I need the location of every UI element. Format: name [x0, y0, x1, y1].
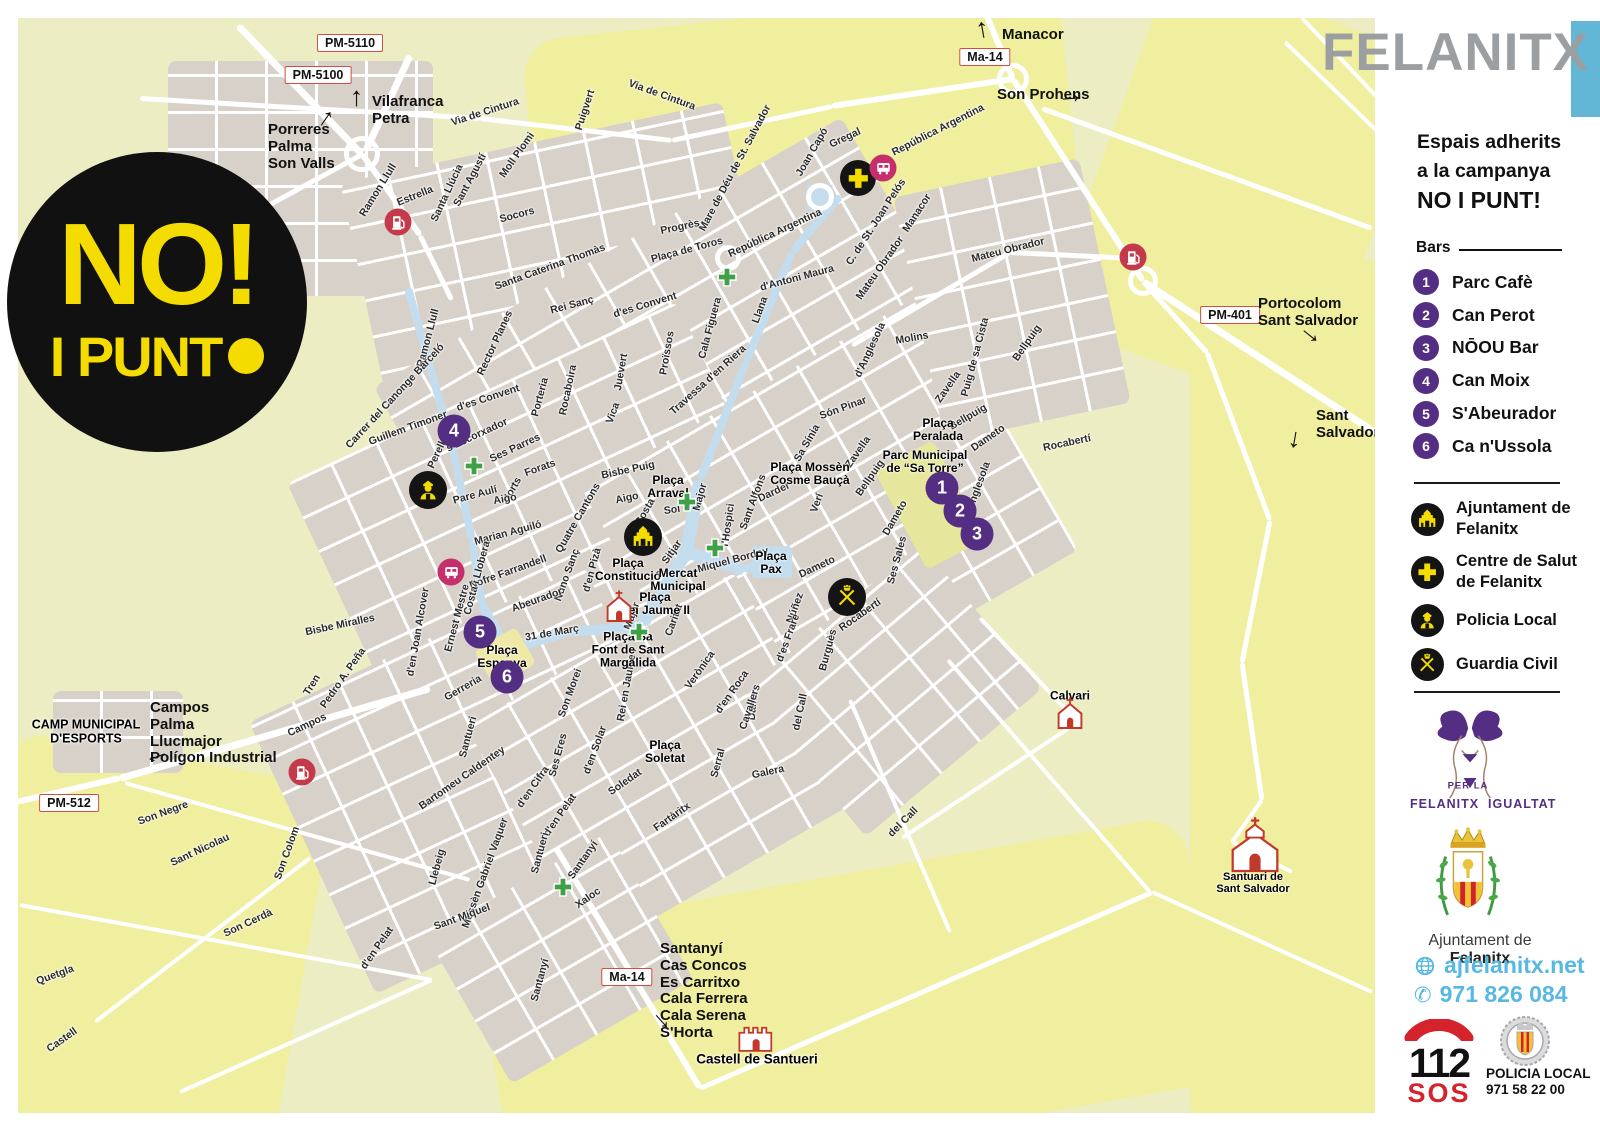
direction-arrow-icon: → — [339, 85, 366, 112]
map-bar-marker-3: 3 — [961, 518, 994, 551]
road-number-badge: Ma-14 — [959, 48, 1010, 66]
police-icon — [1411, 604, 1444, 637]
ajuntament-coat-of-arms — [1434, 824, 1502, 928]
bar-number-badge: 3 — [1413, 335, 1439, 361]
bar-name-label: S'Abeurador — [1452, 403, 1556, 424]
logo-line-2: I PUNT — [50, 324, 265, 389]
cross-icon — [629, 622, 650, 643]
direction-arrow-icon: → — [1056, 80, 1085, 109]
gas-icon — [289, 759, 316, 786]
map-bar-marker-5: 5 — [464, 616, 497, 649]
sos-label: SOS — [1404, 1080, 1474, 1107]
bars-legend-list: 1Parc Cafè2Can Perot3NŌOU Bar4Can Moix5S… — [1413, 266, 1578, 463]
map-bar-marker-6: 6 — [491, 661, 524, 694]
bar-name-label: Can Moix — [1452, 370, 1530, 391]
panel-divider — [1414, 691, 1560, 693]
road-number-badge: Ma-14 — [601, 968, 652, 986]
legend-item: Policia Local — [1411, 604, 1586, 637]
legend-item-label: Policia Local — [1456, 610, 1557, 631]
campaign-line-1: Espais adherits — [1417, 128, 1561, 157]
bar-number-badge: 4 — [1413, 368, 1439, 394]
cross-icon — [677, 492, 698, 513]
police-icon — [409, 471, 447, 509]
roundabout — [806, 183, 834, 211]
phone-icon: ✆ — [1414, 983, 1432, 1007]
bars-section-header: Bars — [1416, 239, 1562, 257]
bars-header-label: Bars — [1416, 239, 1450, 257]
road-number-badge: PM-512 — [39, 794, 99, 812]
road-number-badge: PM-401 — [1200, 306, 1260, 324]
phone-number: 971 826 084 — [1440, 981, 1568, 1008]
page-title: FELANITX — [1322, 22, 1562, 83]
felanitx-campaign-map-poster: Via de CinturaVia de CinturaPuigvertMoll… — [0, 0, 1600, 1131]
roundabout — [1128, 266, 1158, 296]
church-icon — [1052, 695, 1088, 731]
campaign-line-3: NO I PUNT! — [1417, 186, 1561, 215]
globe-icon — [1414, 955, 1436, 977]
legend-item: Centre de Salutde Felanitx — [1411, 551, 1586, 593]
bar-legend-item-4: 4Can Moix — [1413, 364, 1578, 397]
bar-number-badge: 1 — [1413, 269, 1439, 295]
logo-line-1: NO! — [58, 215, 256, 314]
policia-local-contact: POLICIA LOCAL 971 58 22 00 — [1486, 1066, 1591, 1098]
gas-icon — [385, 209, 412, 236]
castle-icon — [735, 1014, 779, 1058]
phone-contact[interactable]: ✆ 971 826 084 — [1414, 981, 1568, 1008]
bar-name-label: Can Perot — [1452, 305, 1535, 326]
igualtat-left-text: FELANITX — [1410, 797, 1479, 811]
cross-icon — [717, 267, 738, 288]
panel-divider — [1414, 482, 1560, 484]
igualtat-right-text: IGUALTAT — [1488, 797, 1556, 811]
map-bar-marker-4: 4 — [438, 415, 471, 448]
bar-legend-item-5: 5S'Abeurador — [1413, 397, 1578, 430]
bars-header-rule — [1459, 249, 1562, 251]
website-url: ajfelanitx.net — [1444, 952, 1585, 979]
bar-legend-item-6: 6Ca n'Ussola — [1413, 430, 1578, 463]
bar-name-label: NŌOU Bar — [1452, 337, 1539, 358]
bar-number-badge: 2 — [1413, 302, 1439, 328]
bar-legend-item-3: 3NŌOU Bar — [1413, 332, 1578, 365]
bar-legend-item-1: 1Parc Cafè — [1413, 266, 1578, 299]
direction-sign: SantSalvador — [1316, 408, 1375, 442]
townhall-icon — [624, 518, 662, 556]
legend-item: Guardia Civil — [1411, 648, 1586, 681]
cross-icon — [705, 538, 726, 559]
street-label: Rocabertí — [1042, 432, 1092, 454]
road-number-badge: PM-5100 — [285, 66, 352, 84]
bigchurch-icon — [1224, 814, 1286, 876]
bus-icon — [438, 559, 465, 586]
campaign-subtitle: Espais adherits a la campanya NO I PUNT! — [1417, 128, 1561, 215]
igualtat-center-text: PER LA — [1448, 781, 1489, 792]
place-label: PlaçaPeralada — [913, 417, 963, 443]
policia-local-label: POLICIA LOCAL — [1486, 1066, 1591, 1082]
icon-legend-list: Ajuntament deFelanitxCentre de Salutde F… — [1411, 498, 1586, 692]
bar-name-label: Ca n'Ussola — [1452, 436, 1551, 457]
gas-icon — [1120, 244, 1147, 271]
website-link[interactable]: ajfelanitx.net — [1414, 952, 1585, 979]
legend-item: Ajuntament deFelanitx — [1411, 498, 1586, 540]
health-icon — [1411, 556, 1444, 589]
cross-icon — [464, 456, 485, 477]
place-label: PlaçaSoletat — [645, 739, 685, 765]
guardia-icon — [1411, 648, 1444, 681]
emergency-112-sos: 112 SOS — [1404, 1019, 1474, 1107]
emergency-number: 112 — [1404, 1046, 1474, 1080]
place-label: CAMP MUNICIPALD'ESPORTS — [32, 719, 141, 746]
campaign-line-2: a la campanya — [1417, 157, 1561, 186]
guardia-icon — [828, 578, 866, 616]
punt-dot — [228, 338, 264, 374]
legend-item-label: Guardia Civil — [1456, 654, 1558, 675]
place-label: PlaçaPax — [755, 550, 786, 576]
bar-number-badge: 6 — [1413, 433, 1439, 459]
bus-icon — [870, 155, 897, 182]
road-number-badge: PM-5110 — [317, 34, 383, 52]
legend-item-label: Ajuntament deFelanitx — [1456, 498, 1571, 540]
legend-item-label: Centre de Salutde Felanitx — [1456, 551, 1577, 593]
bar-name-label: Parc Cafè — [1452, 272, 1533, 293]
bar-number-badge: 5 — [1413, 401, 1439, 427]
direction-arrow-icon: → — [963, 18, 994, 46]
place-label: Plaça MossènCosme Bauçà — [770, 461, 849, 487]
place-label: Parc Municipalde “Sa Torre” — [883, 449, 968, 475]
phone-handset-icon — [1404, 1019, 1474, 1041]
bar-legend-item-2: 2Can Perot — [1413, 299, 1578, 332]
church-icon — [601, 588, 637, 624]
policia-local-badge — [1499, 1014, 1551, 1068]
cross-icon — [553, 877, 574, 898]
direction-sign: VilafrancaPetra — [372, 94, 443, 128]
direction-sign: Manacor — [1002, 27, 1064, 44]
townhall-icon — [1411, 503, 1444, 536]
no-i-punt-logo: NO! I PUNT — [7, 152, 307, 452]
direction-arrow-icon: → — [1283, 425, 1314, 456]
roundabout — [344, 136, 380, 172]
policia-local-phone: 971 58 22 00 — [1486, 1082, 1591, 1098]
